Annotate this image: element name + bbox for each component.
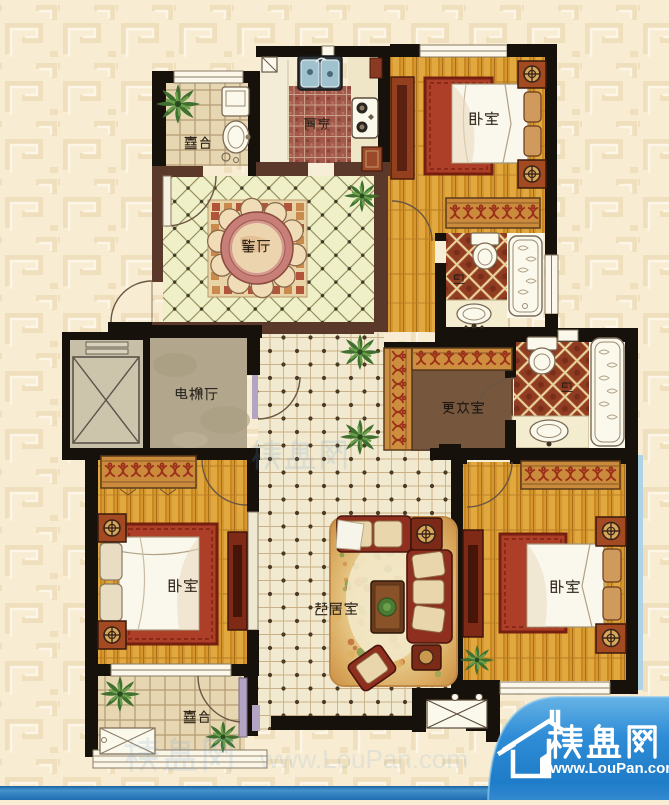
svg-text:www.LouPan.com: www.LouPan.com bbox=[549, 760, 669, 777]
svg-text:www.LouPan.com: www.LouPan.com bbox=[259, 744, 468, 774]
